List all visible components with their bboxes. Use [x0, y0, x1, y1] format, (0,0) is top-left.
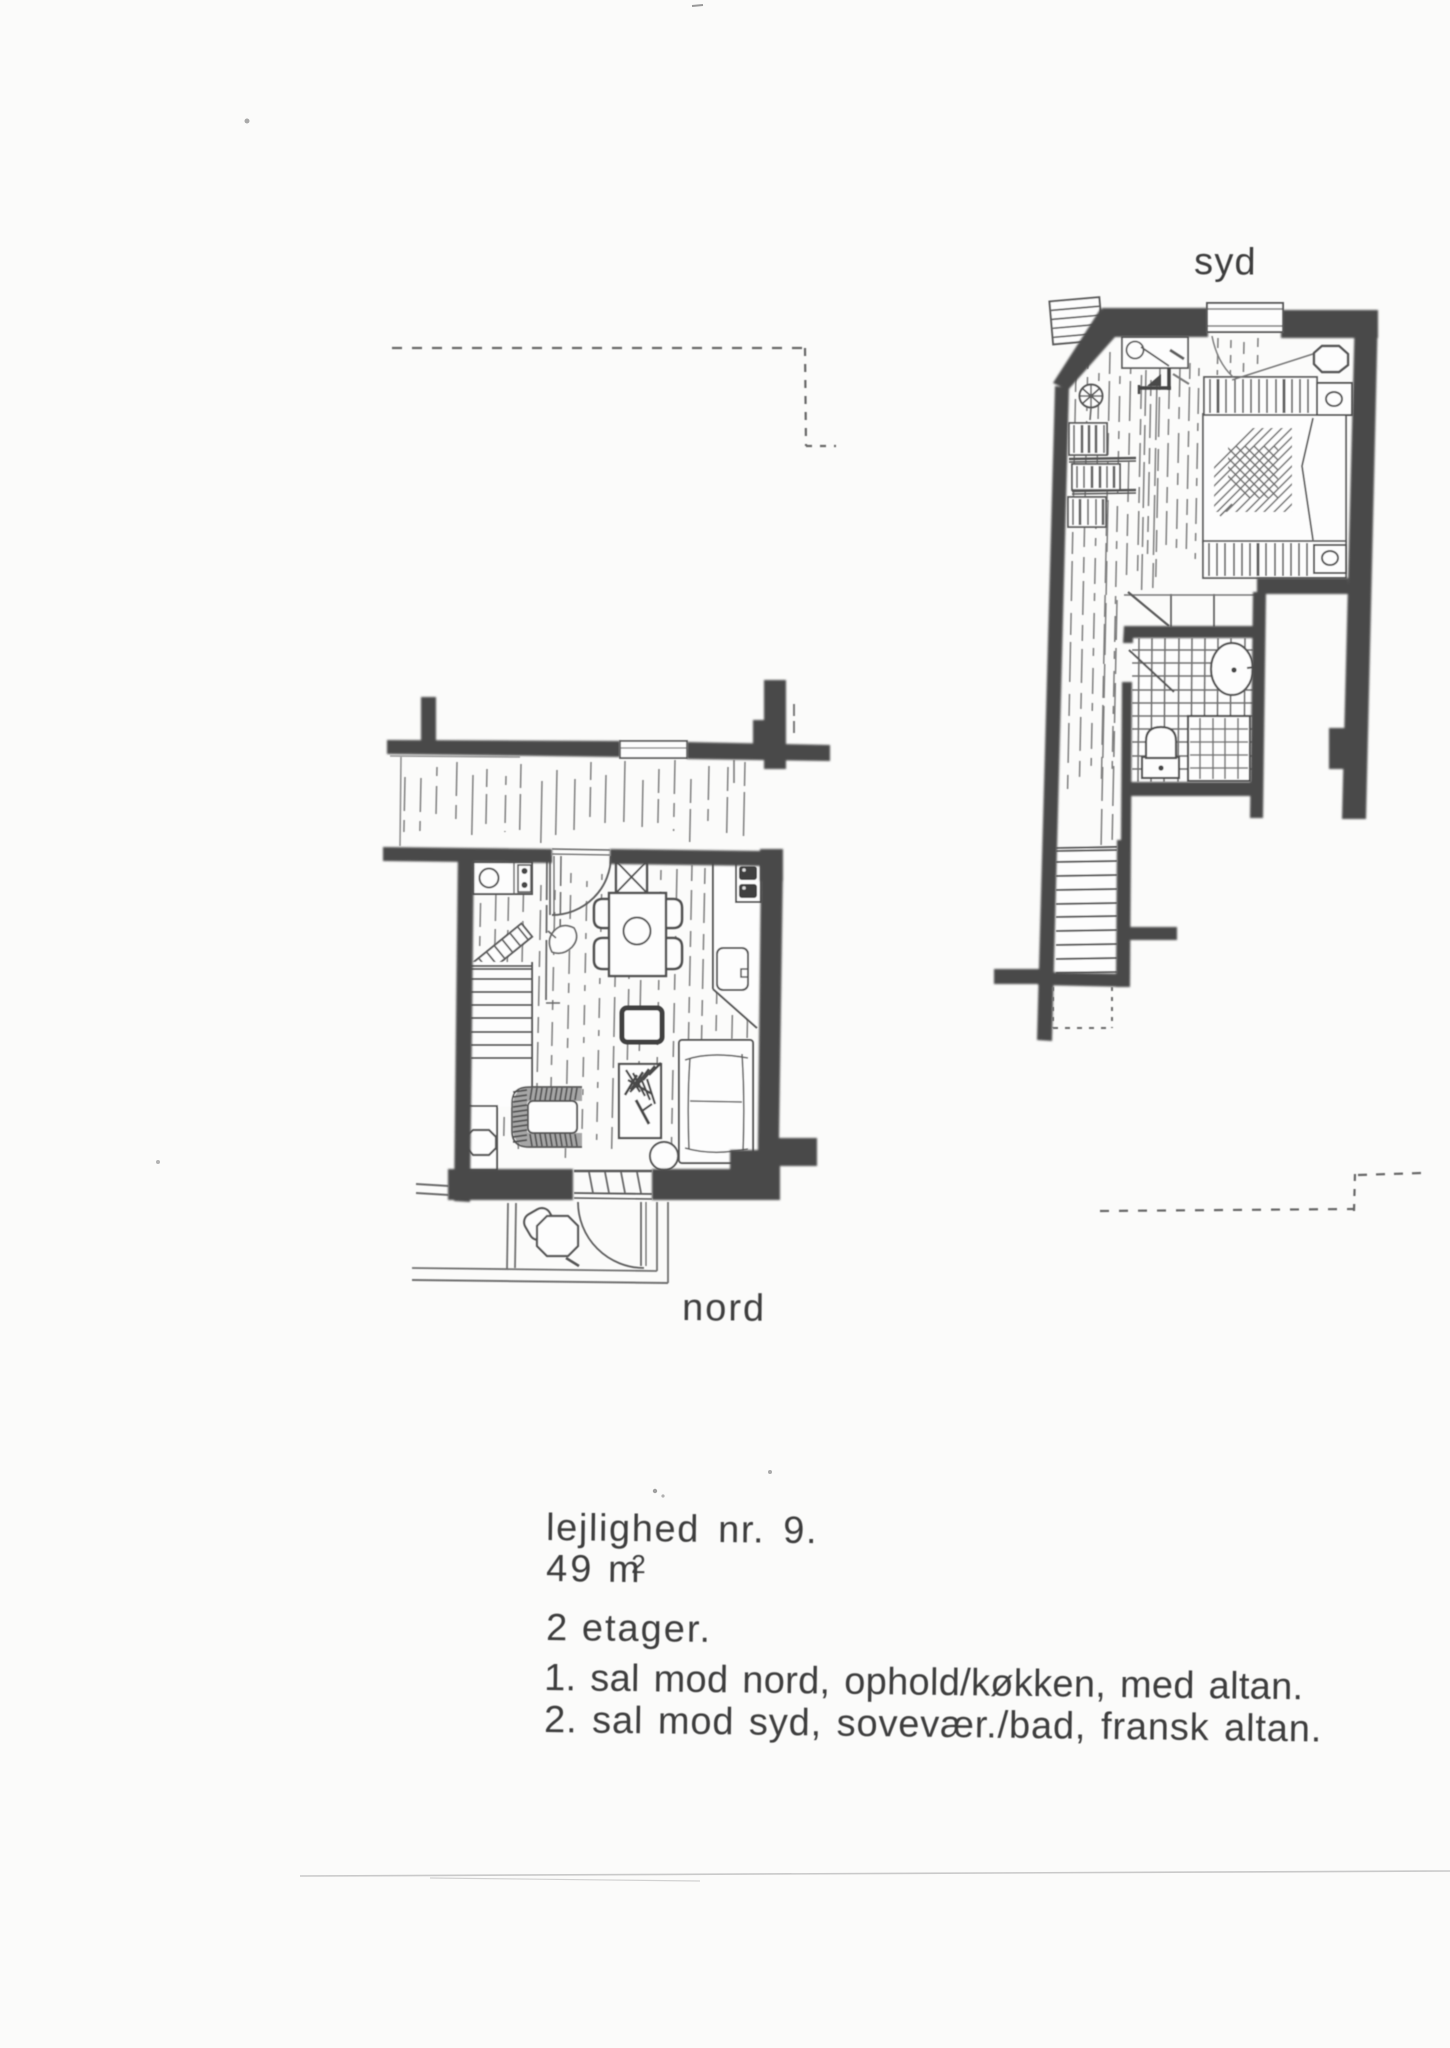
svg-text:syd: syd [1194, 241, 1257, 284]
svg-text:nord: nord [682, 1287, 766, 1330]
svg-text:2. sal mod syd, sovevær./bad,: 2. sal mod syd, sovevær./bad, fransk alt… [544, 1699, 1323, 1751]
svg-text:49 m: 49 m [546, 1548, 643, 1591]
svg-text:2: 2 [631, 1549, 646, 1579]
svg-text:2 etager.: 2 etager. [546, 1607, 712, 1651]
svg-text:lejlighed nr. 9.: lejlighed nr. 9. [546, 1507, 819, 1552]
